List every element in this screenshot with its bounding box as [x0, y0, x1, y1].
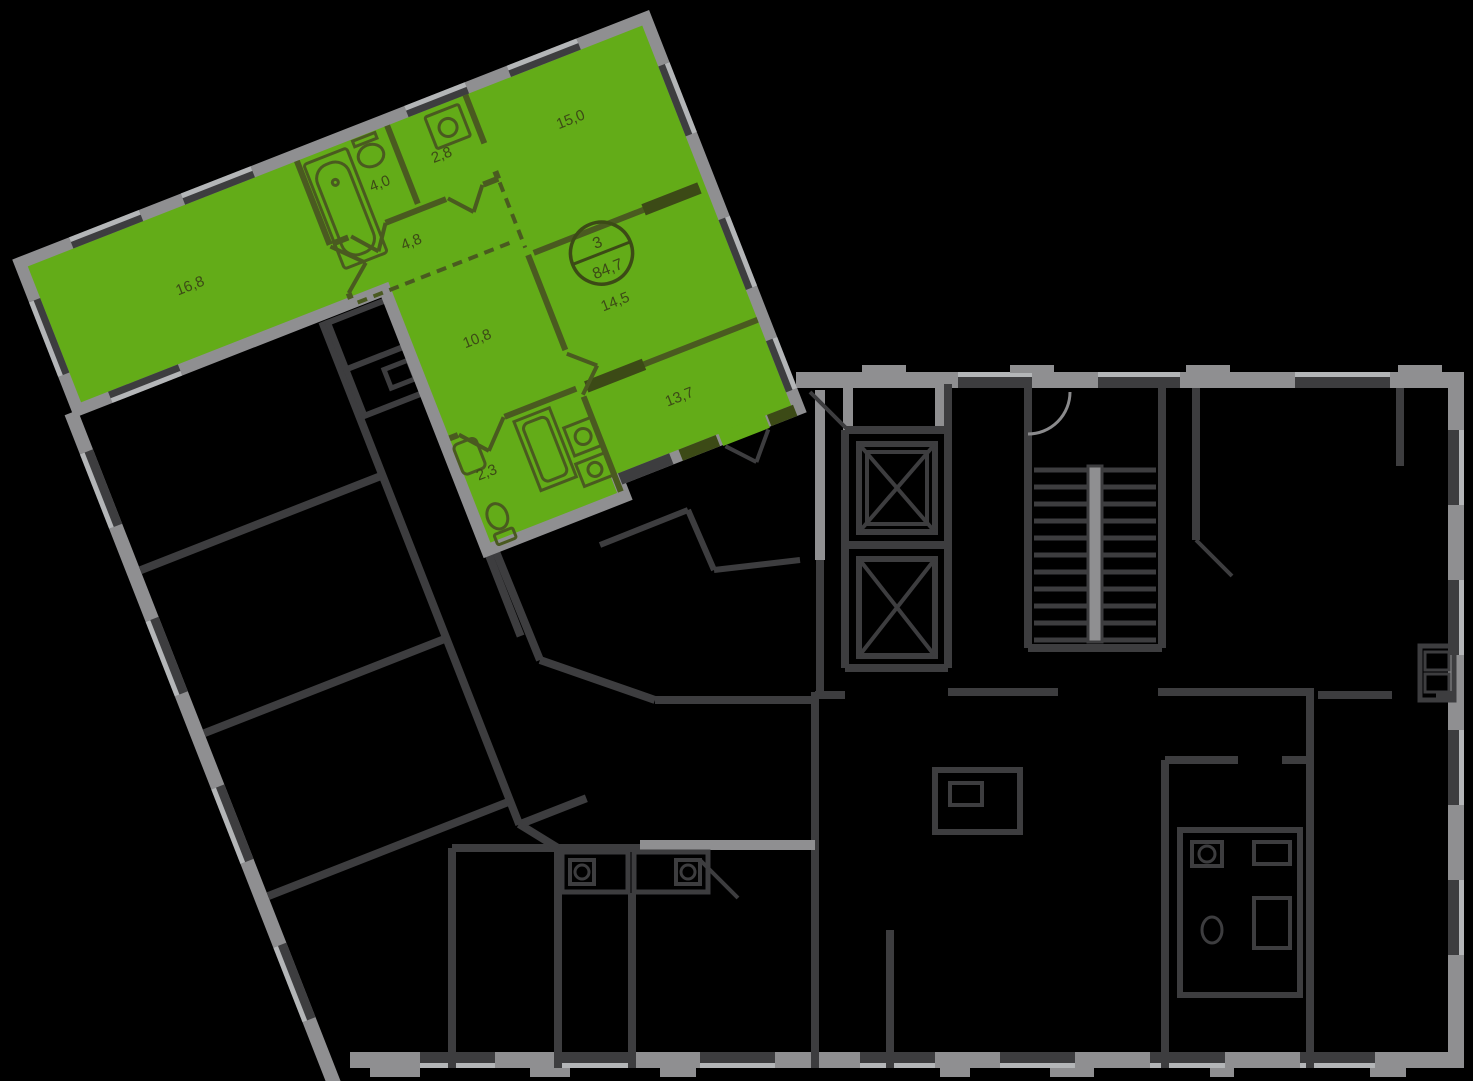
staircase [1028, 388, 1162, 648]
elevator-shafts [845, 384, 948, 668]
floor-plan-page: 16,8 4,0 2,8 15,0 4,8 14,5 10,8 13,7 2,3… [0, 0, 1473, 1081]
rotated-wing: 16,8 4,0 2,8 15,0 4,8 14,5 10,8 13,7 2,3… [5, 10, 973, 1081]
floor-plan: 16,8 4,0 2,8 15,0 4,8 14,5 10,8 13,7 2,3… [0, 0, 1473, 1081]
door-arc [1028, 392, 1070, 434]
